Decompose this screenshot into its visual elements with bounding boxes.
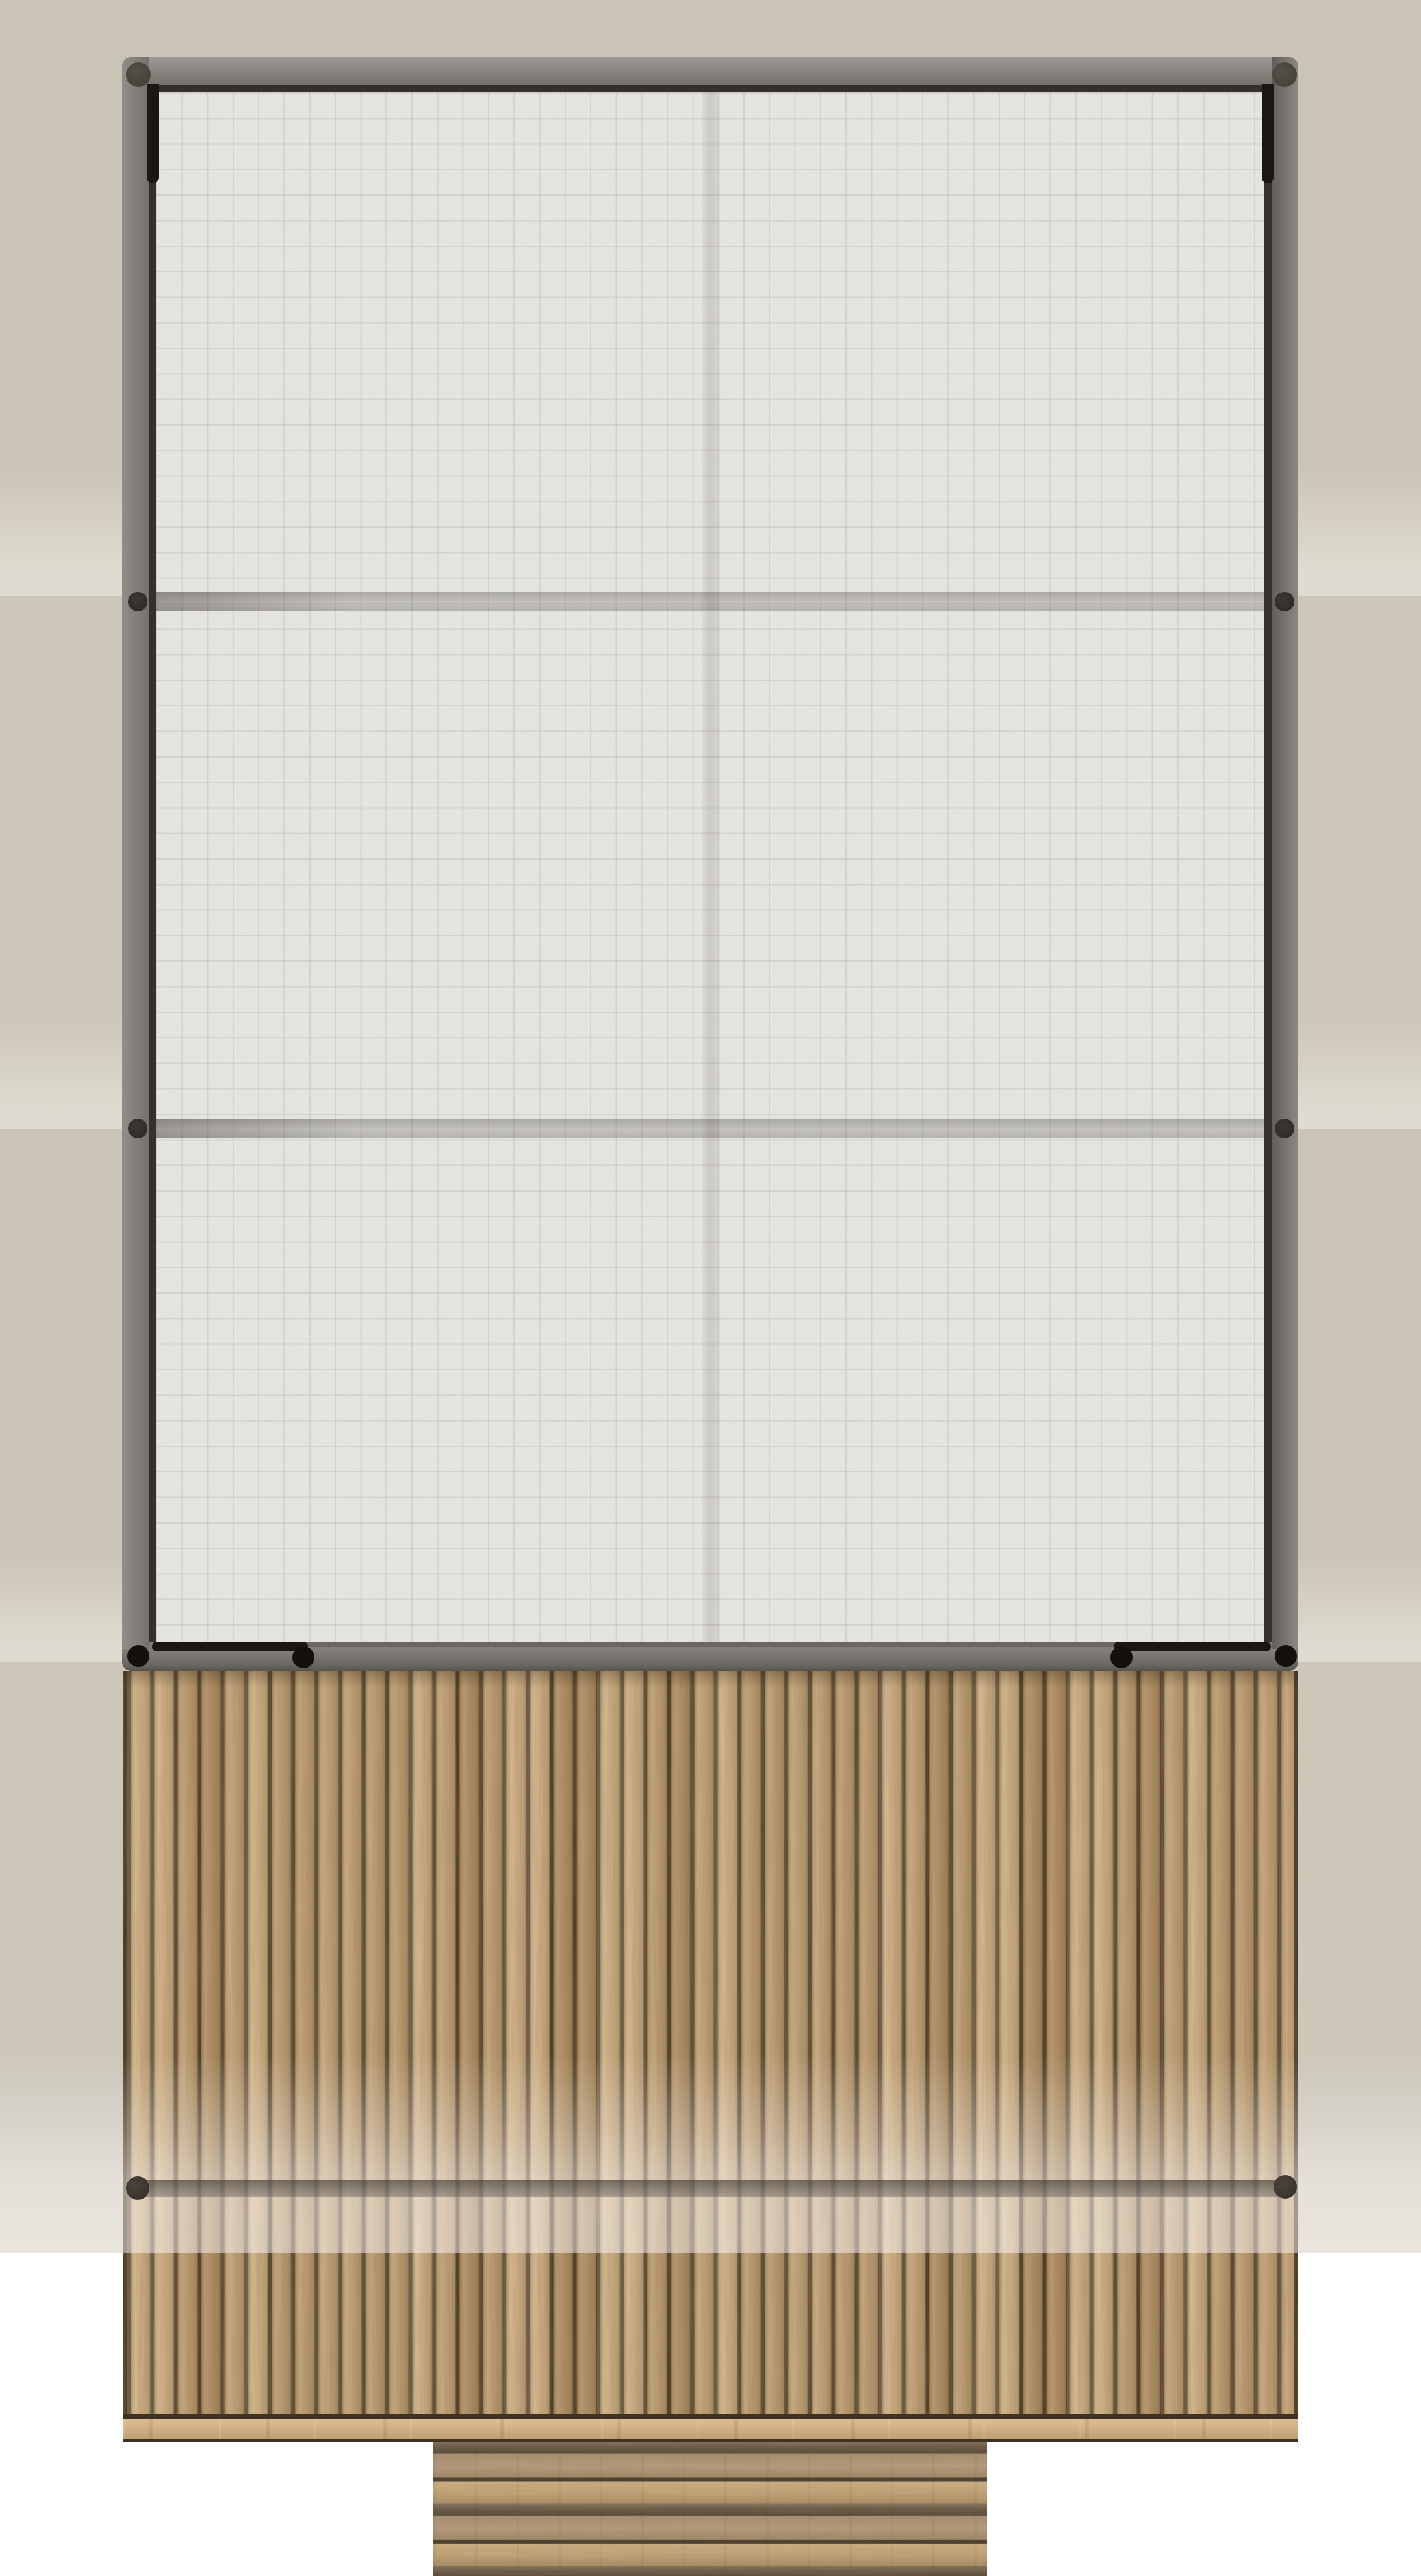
bottom-bracket-right bbox=[1114, 1642, 1271, 1651]
phantom-dot-left bbox=[126, 2176, 149, 2200]
canopy-rafter-beam-1 bbox=[156, 592, 1264, 611]
corner-bracket-left bbox=[147, 84, 159, 183]
pergola-deck-plan-render bbox=[0, 0, 1421, 2576]
pivot-dot-bottom-left bbox=[127, 1645, 149, 1667]
post-dot-top-right bbox=[1272, 62, 1297, 87]
frame-left-bar bbox=[122, 57, 149, 1671]
pivot-dot-right-1 bbox=[1275, 592, 1294, 611]
pivot-dot-bottom-inner-right bbox=[1110, 1646, 1133, 1668]
deck-step-treads bbox=[433, 2442, 987, 2576]
ghost-position-overlay bbox=[0, 2053, 1421, 2253]
deck-planks bbox=[123, 1671, 1298, 2414]
phantom-dot-right bbox=[1274, 2175, 1297, 2199]
canopy-center-seam bbox=[702, 92, 720, 1642]
deck-bottom-rail bbox=[123, 2419, 1298, 2439]
canopy-bottom-edge bbox=[156, 1642, 1264, 1647]
canopy-track-left bbox=[149, 92, 156, 1642]
pivot-dot-left-2 bbox=[128, 1119, 147, 1138]
phantom-beam bbox=[138, 2180, 1285, 2197]
pivot-dot-right-2 bbox=[1275, 1119, 1294, 1138]
bottom-bracket-left bbox=[152, 1642, 308, 1651]
canopy-track-top bbox=[149, 85, 1272, 92]
frame-right-bar bbox=[1272, 57, 1298, 1671]
post-dot-top-left bbox=[126, 62, 151, 87]
pivot-dot-bottom-inner-left bbox=[292, 1646, 314, 1668]
deck-bottom-edge-line bbox=[123, 2414, 1298, 2419]
frame-top-bar bbox=[122, 57, 1298, 85]
canopy-track-right bbox=[1264, 92, 1272, 1642]
deck-top-shadow bbox=[123, 1671, 1298, 1688]
corner-bracket-right bbox=[1262, 84, 1274, 183]
canopy-rafter-beam-2 bbox=[156, 1119, 1264, 1138]
pivot-dot-bottom-right bbox=[1275, 1645, 1297, 1667]
pivot-dot-left-1 bbox=[128, 592, 147, 611]
